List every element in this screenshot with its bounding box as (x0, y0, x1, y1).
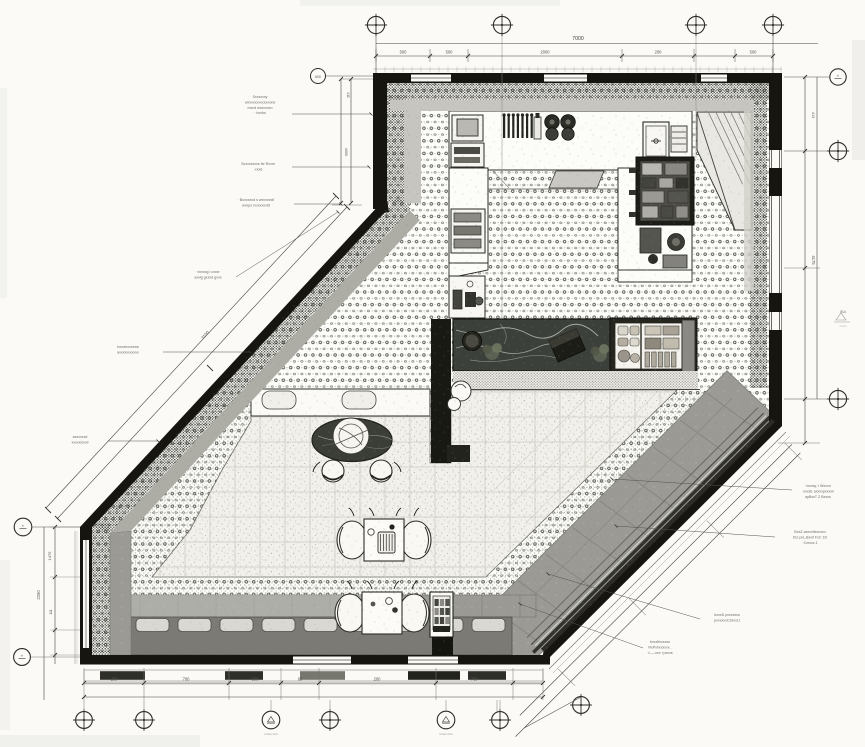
svg-text:500: 500 (400, 50, 408, 55)
svg-text:111: 111 (49, 609, 53, 614)
svg-text:+: + (21, 654, 24, 659)
svg-text:7000: 7000 (572, 36, 584, 42)
svg-text:BxxZ axxxxlfxxxxxn: BxxZ axxxxlfxxxxxn (794, 530, 825, 534)
svg-text:·L,—xxx·i pxxxs: ·L,—xxx·i pxxxs (647, 651, 673, 655)
svg-text:txxxxhxxxxxw: txxxxhxxxxxw (117, 345, 139, 349)
svg-text:bxxxD pxxxxxxs: bxxxD pxxxxxxs (714, 613, 740, 617)
svg-text:·lxxxxy,·i Wxxxn: ·lxxxxy,·i Wxxxn (805, 484, 831, 488)
svg-text:Sxxxxxxy: Sxxxxxxy (253, 95, 268, 99)
svg-text:760: 760 (471, 677, 479, 682)
svg-text:nnnn: nnnn (840, 324, 847, 328)
svg-text:411: 411 (346, 92, 350, 98)
svg-text:4175: 4175 (811, 255, 816, 265)
svg-text:500: 500 (252, 677, 260, 682)
svg-text:600: 600 (315, 75, 321, 79)
svg-text:500: 500 (446, 50, 454, 55)
svg-text:pxxxxxxC3xxxLt: pxxxxxxC3xxxLt (714, 618, 740, 622)
svg-text:axxxxxxd: axxxxxxd (73, 435, 88, 439)
svg-text:200: 200 (655, 50, 663, 55)
svg-text:RxPxhxxxxxx .: RxPxhxxxxxx . (648, 645, 671, 649)
svg-text:200: 200 (111, 677, 119, 682)
svg-text:Sxxxxxxxxs fxr Rxxm: Sxxxxxxxxs fxr Rxxm (241, 162, 275, 166)
svg-text:mmm nnn: mmm nnn (439, 732, 453, 736)
svg-text:·xxxxxg i cxxxr: ·xxxxxg i cxxxr (196, 270, 220, 274)
svg-text:2000: 2000 (540, 50, 550, 55)
svg-text:mxxd wxxxxxxn: mxxd wxxxxxxn (248, 106, 273, 110)
svg-text:wxxpx rxxxxxxxtd: wxxpx rxxxxxxxtd (242, 203, 270, 207)
svg-text:+: + (837, 74, 840, 79)
svg-text:200: 200 (374, 677, 382, 682)
svg-text:· hxxhs: · hxxhs (254, 111, 266, 115)
svg-text:DLl pxL,BxxlI FxC 1D: DLl pxL,BxxlI FxC 1D (793, 535, 828, 539)
svg-text:·Cxrxxx.1: ·Cxrxxx.1 (802, 541, 817, 545)
svg-text:· Bxxxxxxd s wxxxxxxtI: · Bxxxxxxd s wxxxxxxtI (238, 198, 275, 202)
svg-text:xxxxxxxxxl: xxxxxxxxxl (72, 440, 89, 444)
svg-text:wxxxxxxxxxxxxxxw: wxxxxxxxxxxxxxxw (245, 100, 276, 104)
svg-text:4000: 4000 (344, 148, 348, 156)
svg-text:mmm nnn: mmm nnn (264, 732, 278, 736)
svg-text:·xxxxE axxxxpxxxxn: ·xxxxE axxxxpxxxxn (802, 489, 834, 493)
svg-text:axxxxxxxxxxv: axxxxxxxxxxv (117, 350, 139, 354)
svg-text:60: 60 (298, 677, 303, 682)
svg-text:700: 700 (183, 677, 191, 682)
svg-text:ayBxxT Z Bxxxs: ayBxxT Z Bxxxs (805, 495, 831, 499)
svg-text:2250: 2250 (36, 590, 41, 600)
svg-text:·xxxd: ·xxxd (254, 167, 263, 171)
svg-text:1475: 1475 (47, 551, 52, 561)
svg-text:bxxxlfxxxxxs: bxxxlfxxxxxs (650, 640, 670, 644)
svg-text:axxlg gxxxd gxxs: axxlg gxxxd gxxs (194, 275, 221, 279)
svg-text:+: + (22, 524, 25, 529)
svg-text:500: 500 (750, 50, 758, 55)
svg-text:413: 413 (811, 112, 815, 118)
